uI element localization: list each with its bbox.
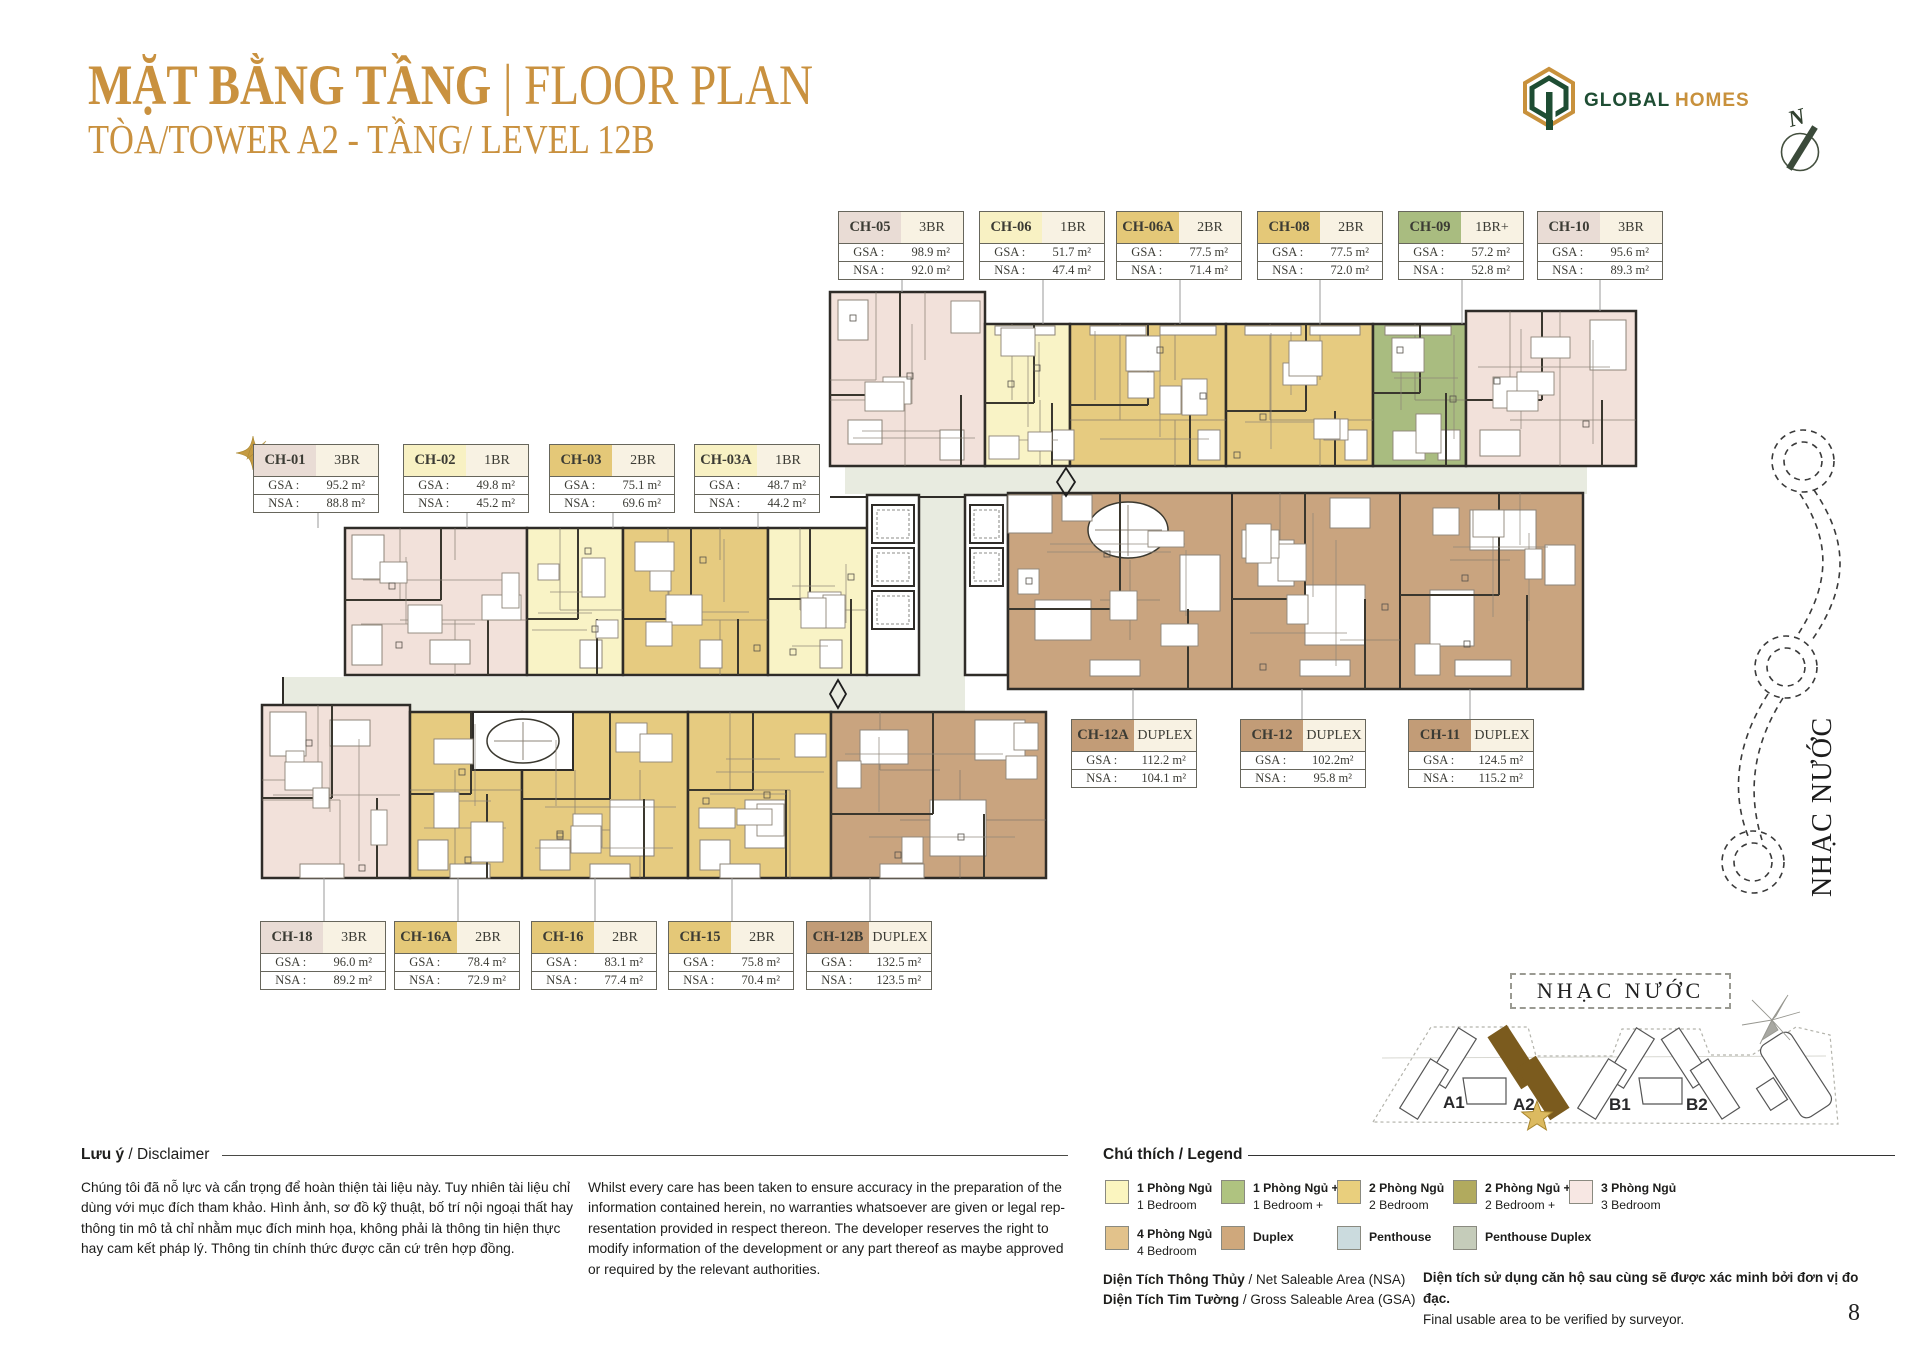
svg-text:GLOBAL: GLOBAL bbox=[1584, 90, 1670, 111]
svg-text:HOMES: HOMES bbox=[1675, 90, 1750, 111]
svg-text:N: N bbox=[1784, 103, 1809, 132]
